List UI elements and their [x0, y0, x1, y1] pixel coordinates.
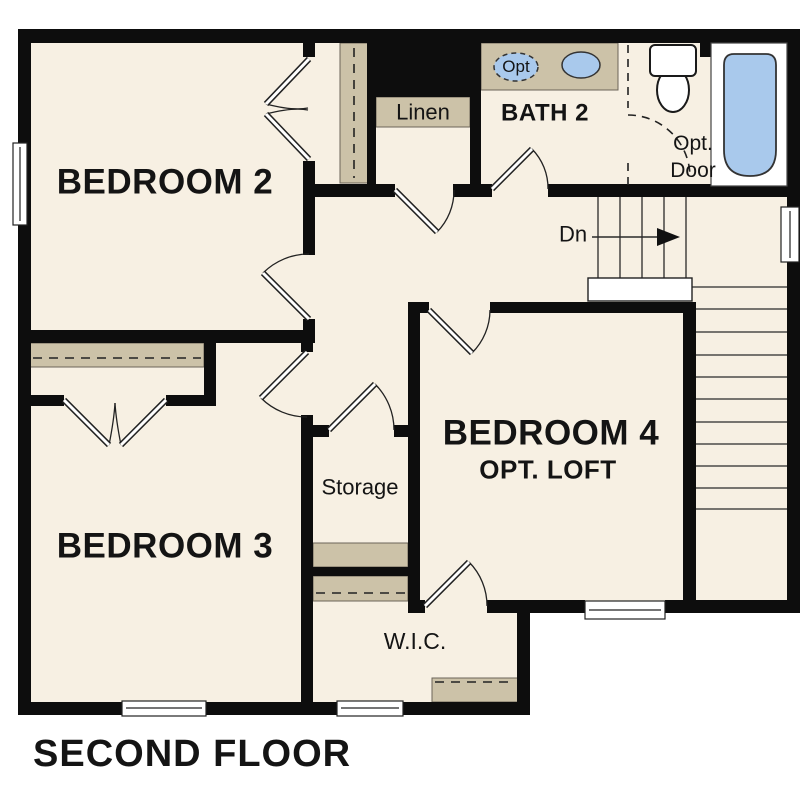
wall-hall-top-b [453, 184, 492, 197]
page-title: SECOND FLOOR [33, 735, 351, 775]
wall-bedroom4-top-b [490, 302, 693, 313]
bathtub-fixture [724, 54, 776, 176]
linen-label: Linen [396, 100, 450, 123]
wall-linen-left [367, 97, 376, 184]
wic-label: W.I.C. [384, 629, 447, 653]
wall-left [18, 29, 31, 715]
floor-plan: BEDROOM 2 BEDROOM 3 BEDROOM 4 OPT. LOFT … [0, 0, 810, 810]
bedroom4-label: BEDROOM 4 [443, 416, 659, 453]
stair-landing [588, 278, 692, 301]
bath2-label: BATH 2 [501, 100, 589, 125]
bedroom3-label: BEDROOM 3 [57, 529, 273, 566]
wall-top [18, 29, 800, 43]
wall-step [517, 600, 530, 715]
wall-hall-top-a [303, 184, 395, 197]
wic-rod-band-top [313, 576, 408, 601]
bedroom2-label: BEDROOM 2 [57, 165, 273, 202]
stairs-down-label: Dn [559, 222, 587, 245]
wall-stair-divider [683, 302, 696, 613]
storage-shelf-band [313, 543, 408, 567]
wall-storage-wic [301, 567, 420, 576]
opt-sink-label: Opt [502, 58, 529, 76]
opt-door-label-line1: Opt. [670, 131, 716, 158]
sink-fixture [562, 52, 600, 78]
opt-door-label: Opt. Door [670, 131, 716, 185]
wall-linen-right [470, 97, 481, 184]
bedroom4-sublabel: OPT. LOFT [479, 456, 616, 483]
storage-label: Storage [321, 475, 398, 498]
bedroom3-closet-band [30, 343, 204, 367]
wall-right [787, 29, 800, 613]
opt-door-label-line2: Door [670, 158, 716, 185]
wall-bedroom4-left [408, 302, 420, 613]
wall-bottom [18, 702, 530, 715]
wall-bedroom2-3-divider [18, 330, 315, 343]
